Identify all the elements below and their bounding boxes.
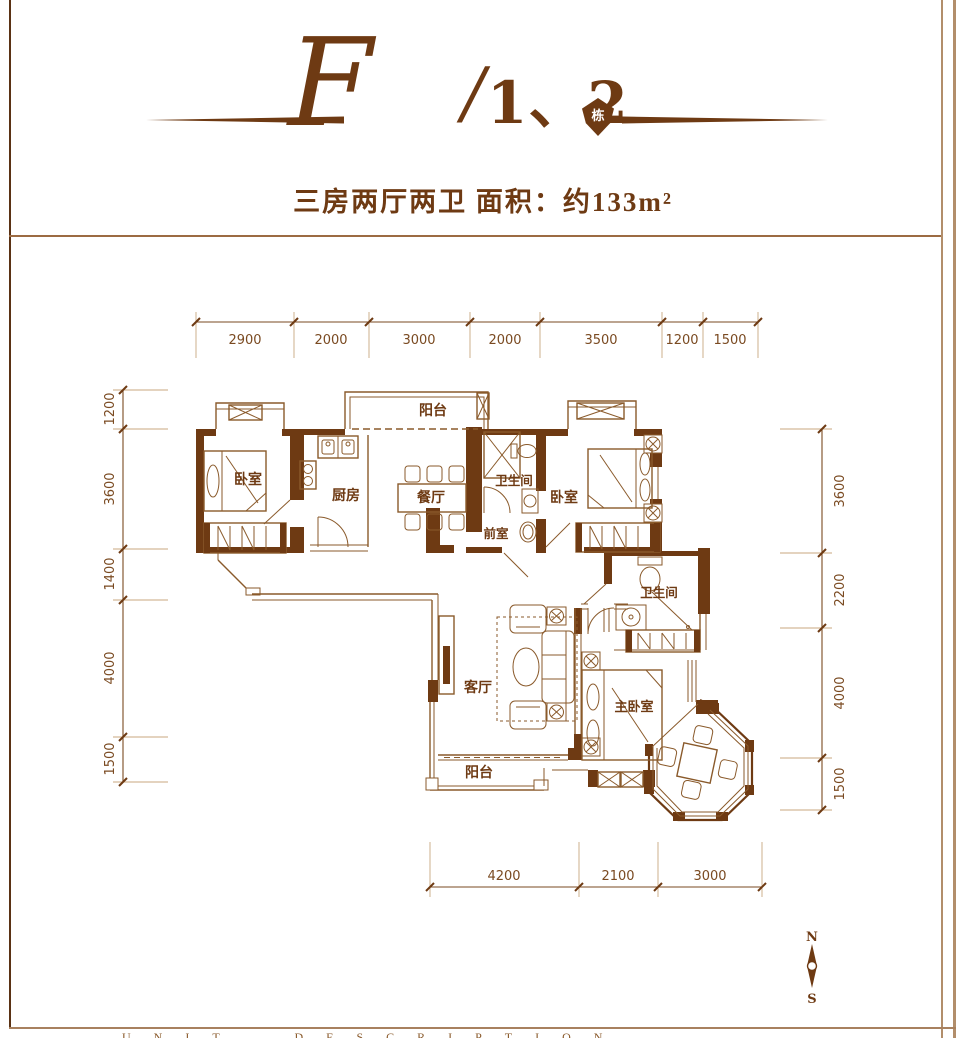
compass: N S [806, 930, 818, 1007]
svg-text:3000: 3000 [693, 869, 726, 884]
dimension-chain-left: 1200 3600 1400 4000 1500 [103, 386, 168, 786]
dimension-chain-top: 2900 2000 3000 2000 3500 1200 1500 [192, 312, 762, 358]
bed-2 [588, 449, 652, 508]
bedroom1-bay-window [229, 405, 262, 420]
svg-text:4000: 4000 [833, 676, 848, 709]
page-title-letter: F [288, 22, 373, 144]
floorplan: 2900 2000 3000 2000 3500 1200 1500 1200 … [0, 290, 966, 1025]
footer-divider-line [9, 1027, 956, 1029]
room-label-living: 客厅 [463, 679, 492, 696]
svg-text:2900: 2900 [228, 333, 261, 348]
svg-text:2100: 2100 [601, 869, 634, 884]
compass-north-label: N [806, 930, 818, 945]
armchair [510, 605, 546, 633]
page-subtitle: 三房两厅两卫 面积：约133m² [0, 180, 966, 219]
svg-text:2000: 2000 [314, 333, 347, 348]
master-south-window [598, 772, 643, 787]
svg-text:1200: 1200 [103, 392, 118, 425]
dimension-chain-right: 3600 2200 4000 1500 [780, 425, 848, 814]
room-label-balcony-bottom: 阳台 [465, 764, 493, 781]
foyer-basin [520, 522, 536, 542]
svg-text:3500: 3500 [584, 333, 617, 348]
svg-text:2200: 2200 [833, 573, 848, 606]
armchair [510, 701, 546, 729]
svg-text:1500: 1500 [713, 333, 746, 348]
svg-text:3000: 3000 [402, 333, 435, 348]
closet-master [626, 630, 700, 652]
room-label-dining: 餐厅 [416, 489, 445, 506]
bedroom2-bay-window [577, 403, 624, 419]
svg-text:4200: 4200 [487, 869, 520, 884]
tea-table-set [651, 719, 743, 807]
header-flourish-right [622, 112, 828, 130]
plant-table [547, 703, 566, 721]
svg-text:2000: 2000 [488, 333, 521, 348]
building-badge-label: 栋 [591, 105, 604, 124]
footer-unit-description: UNIT DESCRIPTION [122, 1030, 625, 1038]
toilet-1 [511, 444, 536, 458]
svg-text:1500: 1500 [103, 742, 118, 775]
shower-1 [484, 432, 520, 478]
sofa [542, 631, 574, 703]
column-symbol [644, 435, 662, 453]
column-symbol [582, 738, 600, 756]
column-symbol [644, 504, 662, 522]
svg-text:4000: 4000 [103, 651, 118, 684]
dimension-chain-bottom: 4200 2100 3000 [426, 842, 766, 897]
room-label-balcony-top: 阳台 [419, 402, 447, 419]
column-symbol [582, 652, 600, 670]
svg-text:3600: 3600 [833, 474, 848, 507]
room-label-master: 主卧室 [614, 699, 653, 715]
walls [196, 427, 754, 821]
svg-text:1200: 1200 [665, 333, 698, 348]
svg-text:1400: 1400 [103, 557, 118, 590]
plant-table [547, 607, 566, 625]
svg-text:3600: 3600 [103, 472, 118, 505]
room-label-bedroom-1: 卧室 [234, 471, 262, 488]
room-label-bath-1: 卫生间 [495, 473, 533, 488]
coffee-table [513, 648, 539, 686]
kitchen-sink [318, 436, 358, 458]
room-label-bedroom-2: 卧室 [550, 489, 578, 506]
room-label-bath-2: 卫生间 [640, 585, 678, 600]
page-title-slash: / [462, 60, 485, 128]
octagon-bay-window [649, 700, 752, 820]
windows [216, 392, 662, 787]
sink-1 [522, 489, 538, 513]
room-label-foyer: 前室 [483, 526, 509, 541]
room-label-kitchen: 厨房 [332, 487, 360, 504]
tv-cabinet [439, 616, 454, 694]
compass-south-label: S [807, 992, 816, 1007]
header-divider-line [9, 235, 941, 237]
svg-text:1500: 1500 [833, 767, 848, 800]
